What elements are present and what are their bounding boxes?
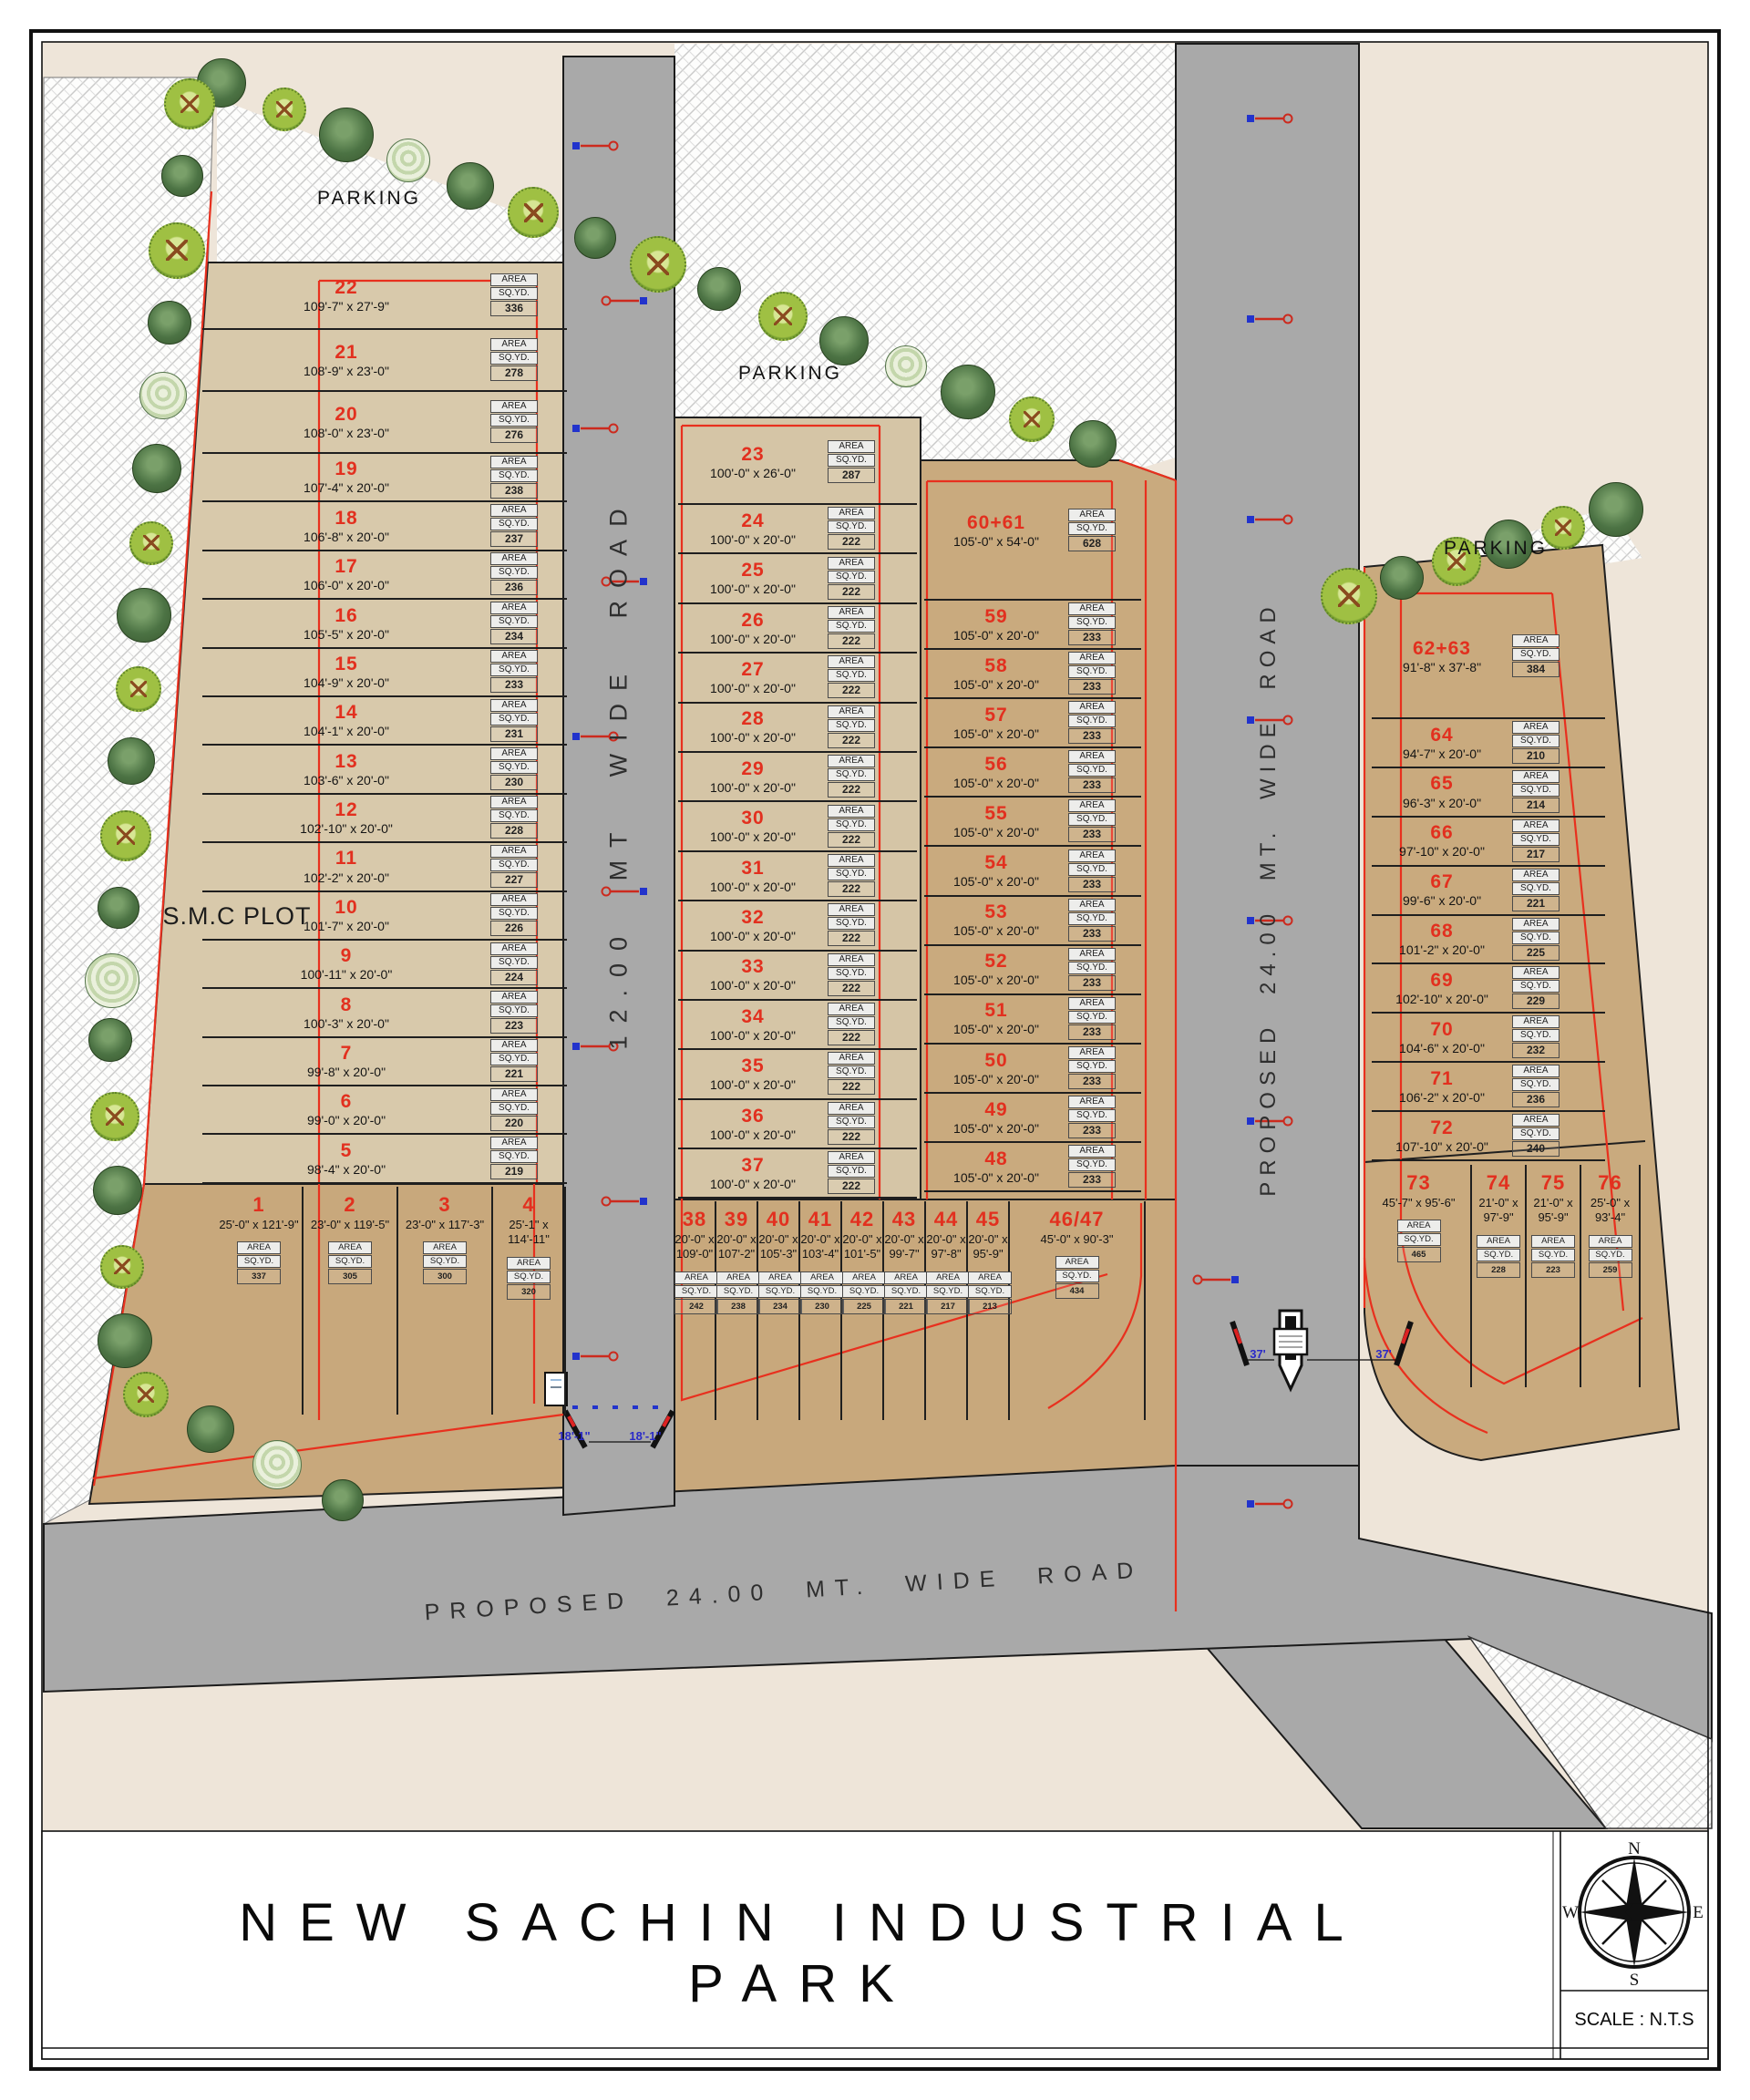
plot-number: 8: [202, 995, 490, 1015]
area-box: AREASQ.YD.278: [490, 338, 538, 382]
plot-dimension: 100'-0" x 20'-0": [678, 1078, 828, 1092]
plot-dimension: 99'-8" x 20'-0": [202, 1065, 490, 1079]
area-box: AREASQ.YD.233: [1068, 849, 1116, 893]
area-box: AREASQ.YD.222: [828, 1102, 875, 1146]
plot-dimension: 98'-4" x 20'-0": [202, 1163, 490, 1177]
area-box: AREASQ.YD.233: [490, 650, 538, 694]
plot-dimension: 94'-7" x 20'-0": [1372, 747, 1512, 761]
plot-column-far-right: 62+6391'-8" x 37'-8"AREASQ.YD.3846494'-7…: [1372, 595, 1605, 1161]
plot-dimension: 100'-0" x 20'-0": [678, 930, 828, 943]
area-box: AREASQ.YD.229: [1512, 966, 1560, 1010]
plot-23: 23100'-0" x 26'-0"AREASQ.YD.287: [678, 421, 917, 505]
area-box: AREASQ.YD.213: [968, 1271, 1012, 1314]
area-box: AREASQ.YD.240: [1512, 1114, 1560, 1158]
plot-number: 37: [678, 1156, 828, 1176]
plot-number: 31: [678, 859, 828, 879]
plot-dimension: 45'-0" x 90'-3": [1010, 1232, 1144, 1247]
area-box: AREASQ.YD.228: [490, 796, 538, 839]
area-box: AREASQ.YD.222: [828, 705, 875, 749]
plot-dimension: 105'-0" x 20'-0": [924, 875, 1068, 889]
plot-dimension: 20'-0" x 107'-2": [716, 1232, 757, 1262]
area-box: AREASQ.YD.236: [1512, 1065, 1560, 1108]
area-box: AREASQ.YD.220: [490, 1088, 538, 1132]
area-box: AREASQ.YD.384: [1512, 634, 1560, 678]
area-box: AREASQ.YD.217: [926, 1271, 970, 1314]
plot-14: 14104'-1" x 20'-0"AREASQ.YD.231: [202, 697, 567, 746]
area-box: AREASQ.YD.230: [800, 1271, 844, 1314]
plot-dimension: 100'-0" x 20'-0": [678, 533, 828, 547]
plot-dimension: 25'-0" x 121'-9": [216, 1218, 302, 1232]
plot-number: 44: [926, 1209, 966, 1230]
plot-60+61: 60+61105'-0" x 54'-0"AREASQ.YD.628: [924, 462, 1141, 601]
plot-49: 49105'-0" x 20'-0"AREASQ.YD.233: [924, 1094, 1141, 1143]
plot-number: 7: [202, 1044, 490, 1064]
plot-number: 42: [842, 1209, 882, 1230]
plot-dimension: 96'-3" x 20'-0": [1372, 797, 1512, 810]
area-box: AREASQ.YD.223: [1531, 1235, 1575, 1278]
plot-50: 50105'-0" x 20'-0"AREASQ.YD.233: [924, 1045, 1141, 1094]
plot-number: 68: [1372, 921, 1512, 942]
tree-icon: [1009, 396, 1055, 442]
road-label-right: PROPOSED 24.00 MT. WIDE ROAD: [1256, 593, 1282, 1204]
area-box: AREASQ.YD.221: [884, 1271, 928, 1314]
plot-68: 68101'-2" x 20'-0"AREASQ.YD.225: [1372, 916, 1605, 965]
tree-icon: [98, 1313, 152, 1368]
area-box: AREASQ.YD.221: [490, 1039, 538, 1083]
plot-dimension: 106'-8" x 20'-0": [202, 530, 490, 544]
plot-number: 50: [924, 1051, 1068, 1071]
plot-number: 33: [678, 957, 828, 977]
plot-number: 2: [304, 1194, 396, 1215]
plot-column-right-middle: 60+61105'-0" x 54'-0"AREASQ.YD.62859105'…: [924, 462, 1141, 1192]
plot-71: 71106'-2" x 20'-0"AREASQ.YD.236: [1372, 1063, 1605, 1112]
plot-31: 31100'-0" x 20'-0"AREASQ.YD.222: [678, 852, 917, 901]
plot-dimension: 106'-0" x 20'-0": [202, 579, 490, 592]
plot-number: 53: [924, 902, 1068, 922]
tree-icon: [447, 162, 494, 210]
tree-icon: [322, 1479, 364, 1521]
plot-dimension: 20'-0" x 105'-3": [758, 1232, 798, 1262]
plot-72: 72107'-10" x 20'-0"AREASQ.YD.240: [1372, 1112, 1605, 1161]
plot-dimension: 100'-0" x 20'-0": [678, 979, 828, 993]
plot-dimension: 106'-2" x 20'-0": [1372, 1091, 1512, 1105]
plot-number: 35: [678, 1056, 828, 1076]
plot-number: 14: [202, 703, 490, 723]
plot-dimension: 104'-9" x 20'-0": [202, 676, 490, 690]
plot-number: 13: [202, 752, 490, 772]
plot-dimension: 107'-4" x 20'-0": [202, 481, 490, 495]
tree-icon: [85, 953, 139, 1008]
area-box: AREASQ.YD.222: [828, 557, 875, 601]
area-box: AREASQ.YD.230: [490, 747, 538, 791]
plot-dimension: 20'-0" x 99'-7": [884, 1232, 924, 1262]
area-box: AREASQ.YD.233: [1068, 1046, 1116, 1090]
plot-number: 70: [1372, 1020, 1512, 1040]
plot-number: 40: [758, 1209, 798, 1230]
plot-number: 9: [202, 946, 490, 966]
tree-icon: [819, 316, 869, 365]
plot-17: 17106'-0" x 20'-0"AREASQ.YD.236: [202, 551, 567, 600]
area-box: AREASQ.YD.434: [1055, 1256, 1099, 1299]
plot-dimension: 100'-0" x 20'-0": [678, 830, 828, 844]
plot-40: 4020'-0" x 105'-3"AREASQ.YD.234: [758, 1201, 800, 1420]
area-box: AREASQ.YD.300: [423, 1241, 467, 1284]
plot-number: 51: [924, 1001, 1068, 1021]
plot-dimension: 101'-2" x 20'-0": [1372, 943, 1512, 957]
tree-icon: [252, 1440, 302, 1489]
plot-42: 4220'-0" x 101'-5"AREASQ.YD.225: [842, 1201, 884, 1420]
plot-dimension: 100'-11" x 20'-0": [202, 968, 490, 982]
plot-59: 59105'-0" x 20'-0"AREASQ.YD.233: [924, 601, 1141, 650]
area-box: AREASQ.YD.225: [1512, 918, 1560, 962]
area-box: AREASQ.YD.221: [1512, 869, 1560, 912]
plot-28: 28100'-0" x 20'-0"AREASQ.YD.222: [678, 704, 917, 753]
plot-number: 4: [493, 1194, 564, 1215]
plot-dimension: 97'-10" x 20'-0": [1372, 845, 1512, 859]
tree-icon: [100, 1245, 144, 1289]
plot-24: 24100'-0" x 20'-0"AREASQ.YD.222: [678, 505, 917, 554]
plot-number: 36: [678, 1107, 828, 1127]
plot-9: 9100'-11" x 20'-0"AREASQ.YD.224: [202, 941, 567, 989]
plot-38: 3820'-0" x 109'-0"AREASQ.YD.242: [674, 1201, 716, 1420]
plot-dimension: 20'-0" x 109'-0": [674, 1232, 715, 1262]
plot-dimension: 100'-0" x 20'-0": [678, 582, 828, 596]
plot-dimension: 100'-0" x 20'-0": [678, 633, 828, 646]
plot-8: 8100'-3" x 20'-0"AREASQ.YD.223: [202, 989, 567, 1037]
plot-number: 28: [678, 709, 828, 729]
plot-number: 38: [674, 1209, 715, 1230]
plot-number: 18: [202, 509, 490, 529]
plot-number: 21: [202, 343, 490, 363]
tree-icon: [117, 588, 171, 643]
area-box: AREASQ.YD.222: [828, 606, 875, 650]
plot-dimension: 104'-6" x 20'-0": [1372, 1042, 1512, 1055]
area-box: AREASQ.YD.231: [490, 699, 538, 743]
parking-label-top-left: PARKING: [292, 188, 447, 210]
plot-number: 45: [968, 1209, 1008, 1230]
plot-13: 13103'-6" x 20'-0"AREASQ.YD.230: [202, 746, 567, 794]
plot-dimension: 45'-7" x 95'-6": [1367, 1196, 1470, 1210]
plot-dimension: 105'-0" x 20'-0": [924, 1023, 1068, 1036]
area-box: AREASQ.YD.305: [328, 1241, 372, 1284]
plot-3: 323'-0" x 117'-3"AREASQ.YD.300: [398, 1187, 493, 1415]
plot-dimension: 105'-0" x 20'-0": [924, 826, 1068, 839]
plot-number: 11: [202, 849, 490, 869]
plot-number: 3: [398, 1194, 491, 1215]
plot-15: 15104'-9" x 20'-0"AREASQ.YD.233: [202, 649, 567, 697]
area-box: AREASQ.YD.233: [1068, 750, 1116, 794]
plot-dimension: 100'-0" x 20'-0": [678, 1029, 828, 1043]
plot-70: 70104'-6" x 20'-0"AREASQ.YD.232: [1372, 1014, 1605, 1063]
plot-number: 55: [924, 804, 1068, 824]
plot-dimension: 99'-6" x 20'-0": [1372, 894, 1512, 908]
plot-dimension: 105'-0" x 20'-0": [924, 1073, 1068, 1086]
gate-dimension: 37': [1364, 1347, 1404, 1361]
plot-44: 4420'-0" x 97'-8"AREASQ.YD.217: [926, 1201, 968, 1420]
area-box: AREASQ.YD.233: [1068, 899, 1116, 942]
area-box: AREASQ.YD.233: [1068, 948, 1116, 992]
plot-64: 6494'-7" x 20'-0"AREASQ.YD.210: [1372, 719, 1605, 768]
tree-icon: [758, 292, 808, 341]
plot-number: 5: [202, 1141, 490, 1161]
parking-label-middle: PARKING: [713, 363, 868, 385]
plot-dimension: 100'-0" x 20'-0": [678, 1128, 828, 1142]
plot-54: 54105'-0" x 20'-0"AREASQ.YD.233: [924, 847, 1141, 896]
tree-icon: [93, 1166, 142, 1215]
tree-icon: [149, 222, 205, 279]
plot-dimension: 100'-0" x 26'-0": [678, 467, 828, 480]
tree-icon: [88, 1018, 132, 1062]
plot-dimension: 105'-0" x 20'-0": [924, 629, 1068, 643]
plot-number: 34: [678, 1007, 828, 1027]
site-plan: N S E W PARKING PARKING PARKING S.M.C PL…: [0, 0, 1750, 2100]
compass-west: W: [1562, 1903, 1579, 1922]
plot-75: 7521'-0" x 95'-9"AREASQ.YD.223: [1527, 1165, 1581, 1387]
area-box: AREASQ.YD.465: [1397, 1220, 1441, 1262]
plot-25: 25100'-0" x 20'-0"AREASQ.YD.222: [678, 554, 917, 603]
plot-27: 27100'-0" x 20'-0"AREASQ.YD.222: [678, 654, 917, 703]
plot-number: 62+63: [1372, 639, 1512, 659]
road-label-middle: 12.00 MT WIDE ROAD: [605, 540, 633, 1050]
plot-11: 11102'-2" x 20'-0"AREASQ.YD.227: [202, 843, 567, 891]
plot-53: 53105'-0" x 20'-0"AREASQ.YD.233: [924, 897, 1141, 946]
plot-57: 57105'-0" x 20'-0"AREASQ.YD.233: [924, 699, 1141, 748]
plot-dimension: 99'-0" x 20'-0": [202, 1114, 490, 1127]
area-box: AREASQ.YD.228: [1477, 1235, 1520, 1278]
area-box: AREASQ.YD.222: [828, 1151, 875, 1195]
area-box: AREASQ.YD.224: [490, 942, 538, 986]
plot-number: 48: [924, 1149, 1068, 1169]
area-box: AREASQ.YD.234: [758, 1271, 802, 1314]
plot-69: 69102'-10" x 20'-0"AREASQ.YD.229: [1372, 964, 1605, 1014]
tree-icon: [1380, 556, 1424, 600]
area-box: AREASQ.YD.336: [490, 273, 538, 317]
tree-icon: [164, 78, 215, 129]
plot-dimension: 100'-3" x 20'-0": [202, 1017, 490, 1031]
plot-number: 46/47: [1010, 1209, 1144, 1230]
plot-dimension: 25'-0" x 93'-4": [1581, 1196, 1639, 1226]
tree-icon: [90, 1092, 139, 1141]
plot-number: 22: [202, 278, 490, 298]
plot-dimension: 105'-0" x 20'-0": [924, 1122, 1068, 1136]
plot-6: 699'-0" x 20'-0"AREASQ.YD.220: [202, 1086, 567, 1135]
plot-number: 12: [202, 800, 490, 820]
plot-number: 30: [678, 808, 828, 829]
tree-icon: [148, 301, 191, 345]
plot-33: 33100'-0" x 20'-0"AREASQ.YD.222: [678, 952, 917, 1001]
plot-number: 41: [800, 1209, 840, 1230]
plot-34: 34100'-0" x 20'-0"AREASQ.YD.222: [678, 1001, 917, 1050]
area-box: AREASQ.YD.234: [490, 602, 538, 645]
plot-58: 58105'-0" x 20'-0"AREASQ.YD.233: [924, 650, 1141, 699]
plot-37: 37100'-0" x 20'-0"AREASQ.YD.222: [678, 1149, 917, 1199]
plot-number: 43: [884, 1209, 924, 1230]
area-box: AREASQ.YD.219: [490, 1137, 538, 1180]
area-box: AREASQ.YD.214: [1512, 770, 1560, 814]
tree-icon: [319, 108, 374, 162]
plot-2: 223'-0" x 119'-5"AREASQ.YD.305: [304, 1187, 398, 1415]
area-box: AREASQ.YD.226: [490, 893, 538, 937]
plot-number: 32: [678, 908, 828, 928]
area-box: AREASQ.YD.276: [490, 400, 538, 444]
plot-dimension: 91'-8" x 37'-8": [1372, 661, 1512, 674]
area-box: AREASQ.YD.287: [828, 440, 875, 484]
area-box: AREASQ.YD.222: [828, 1052, 875, 1096]
plot-5: 598'-4" x 20'-0"AREASQ.YD.219: [202, 1135, 567, 1183]
plot-dimension: 104'-1" x 20'-0": [202, 725, 490, 738]
area-box: AREASQ.YD.222: [828, 903, 875, 947]
plot-number: 54: [924, 853, 1068, 873]
tree-icon: [1321, 568, 1377, 624]
plot-strip-far-right-bottom: 7345'-7" x 95'-6"AREASQ.YD.4657421'-0" x…: [1367, 1165, 1641, 1387]
plot-dimension: 105'-0" x 20'-0": [924, 727, 1068, 741]
tree-icon: [386, 139, 430, 182]
area-box: AREASQ.YD.225: [842, 1271, 886, 1314]
plot-12: 12102'-10" x 20'-0"AREASQ.YD.228: [202, 795, 567, 843]
plot-dimension: 100'-0" x 20'-0": [678, 731, 828, 745]
plot-dimension: 109'-7" x 27'-9": [202, 300, 490, 314]
plot-number: 58: [924, 656, 1068, 676]
plot-46/47: 46/4745'-0" x 90'-3"AREASQ.YD.434: [1010, 1201, 1146, 1420]
plot-dimension: 105'-0" x 20'-0": [924, 973, 1068, 987]
plot-16: 16105'-5" x 20'-0"AREASQ.YD.234: [202, 600, 567, 648]
plot-dimension: 21'-0" x 95'-9": [1527, 1196, 1580, 1226]
plot-dimension: 100'-0" x 20'-0": [678, 880, 828, 894]
area-box: AREASQ.YD.227: [490, 845, 538, 889]
plot-column-left: 22109'-7" x 27'-9"AREASQ.YD.33621108'-9"…: [202, 262, 567, 1184]
plot-41: 4120'-0" x 103'-4"AREASQ.YD.230: [800, 1201, 842, 1420]
plot-29: 29100'-0" x 20'-0"AREASQ.YD.222: [678, 753, 917, 802]
plot-number: 52: [924, 952, 1068, 972]
plot-30: 30100'-0" x 20'-0"AREASQ.YD.222: [678, 802, 917, 851]
plot-dimension: 23'-0" x 119'-5": [304, 1218, 396, 1232]
tree-icon: [1069, 420, 1117, 468]
plot-number: 23: [678, 445, 828, 465]
plot-number: 39: [716, 1209, 757, 1230]
plot-dimension: 21'-0" x 97'-9": [1472, 1196, 1525, 1226]
area-box: AREASQ.YD.222: [828, 1003, 875, 1046]
plot-1: 125'-0" x 121'-9"AREASQ.YD.337: [216, 1187, 304, 1415]
plot-number: 64: [1372, 726, 1512, 746]
plot-number: 26: [678, 611, 828, 631]
plot-22: 22109'-7" x 27'-9"AREASQ.YD.336: [202, 262, 567, 330]
gate-dimension: 37': [1238, 1347, 1278, 1361]
plot-number: 24: [678, 511, 828, 531]
area-box: AREASQ.YD.233: [1068, 1145, 1116, 1189]
plot-43: 4320'-0" x 99'-7"AREASQ.YD.221: [884, 1201, 926, 1420]
plot-number: 65: [1372, 774, 1512, 794]
area-box: AREASQ.YD.242: [674, 1271, 718, 1314]
plot-dimension: 100'-0" x 20'-0": [678, 781, 828, 795]
plot-number: 74: [1472, 1172, 1525, 1193]
tree-icon: [1589, 482, 1643, 537]
plot-45: 4520'-0" x 95'-9"AREASQ.YD.213: [968, 1201, 1010, 1420]
area-box: AREASQ.YD.238: [716, 1271, 760, 1314]
plot-number: 72: [1372, 1118, 1512, 1138]
plot-dimension: 105'-5" x 20'-0": [202, 628, 490, 642]
plot-dimension: 108'-0" x 23'-0": [202, 427, 490, 440]
tree-icon: [139, 372, 187, 419]
plot-dimension: 20'-0" x 103'-4": [800, 1232, 840, 1262]
area-box: AREASQ.YD.223: [490, 991, 538, 1035]
plot-number: 73: [1367, 1172, 1470, 1193]
plot-20: 20108'-0" x 23'-0"AREASQ.YD.276: [202, 392, 567, 454]
plot-number: 16: [202, 606, 490, 626]
plot-number: 76: [1581, 1172, 1639, 1193]
plot-56: 56105'-0" x 20'-0"AREASQ.YD.233: [924, 748, 1141, 798]
area-box: AREASQ.YD.259: [1589, 1235, 1632, 1278]
plot-number: 75: [1527, 1172, 1580, 1193]
area-box: AREASQ.YD.232: [1512, 1015, 1560, 1059]
area-box: AREASQ.YD.237: [490, 504, 538, 548]
parking-label-right: PARKING: [1418, 538, 1573, 560]
plot-number: 69: [1372, 971, 1512, 991]
plot-column-middle: 23100'-0" x 26'-0"AREASQ.YD.28724100'-0"…: [678, 421, 917, 1199]
area-box: AREASQ.YD.233: [1068, 652, 1116, 695]
plot-dimension: 105'-0" x 54'-0": [924, 535, 1068, 549]
compass-east: E: [1693, 1903, 1704, 1922]
plot-number: 60+61: [924, 513, 1068, 533]
plot-dimension: 100'-0" x 20'-0": [678, 682, 828, 695]
plot-36: 36100'-0" x 20'-0"AREASQ.YD.222: [678, 1100, 917, 1149]
gate-dimension: 18'-1": [547, 1429, 602, 1443]
plot-35: 35100'-0" x 20'-0"AREASQ.YD.222: [678, 1050, 917, 1099]
tree-icon: [132, 444, 181, 493]
plot-dimension: 25'-1" x 114'-11": [493, 1218, 564, 1248]
tree-icon: [116, 666, 161, 712]
area-box: AREASQ.YD.222: [828, 655, 875, 699]
plot-number: 66: [1372, 823, 1512, 843]
plot-number: 71: [1372, 1069, 1512, 1089]
plot-dimension: 102'-10" x 20'-0": [202, 822, 490, 836]
plot-number: 19: [202, 459, 490, 479]
area-box: AREASQ.YD.238: [490, 456, 538, 499]
plot-number: 49: [924, 1100, 1068, 1120]
plot-number: 56: [924, 755, 1068, 775]
area-box: AREASQ.YD.222: [828, 953, 875, 997]
plot-dimension: 20'-0" x 101'-5": [842, 1232, 882, 1262]
plot-19: 19107'-4" x 20'-0"AREASQ.YD.238: [202, 454, 567, 502]
compass-north: N: [1628, 1839, 1641, 1858]
area-box: AREASQ.YD.233: [1068, 602, 1116, 646]
area-box: AREASQ.YD.222: [828, 854, 875, 898]
area-box: AREASQ.YD.222: [828, 805, 875, 849]
plot-number: 15: [202, 654, 490, 674]
plot-number: 27: [678, 660, 828, 680]
area-box: AREASQ.YD.233: [1068, 997, 1116, 1041]
area-box: AREASQ.YD.236: [490, 552, 538, 596]
plot-66: 6697'-10" x 20'-0"AREASQ.YD.217: [1372, 818, 1605, 867]
plot-52: 52105'-0" x 20'-0"AREASQ.YD.233: [924, 946, 1141, 995]
plot-dimension: 102'-2" x 20'-0": [202, 871, 490, 885]
area-box: AREASQ.YD.337: [237, 1241, 281, 1284]
gate-dimension: 18'-1": [618, 1429, 673, 1443]
smc-plot-label: S.M.C PLOT: [137, 902, 337, 931]
plot-26: 26100'-0" x 20'-0"AREASQ.YD.222: [678, 604, 917, 654]
plot-number: 6: [202, 1092, 490, 1112]
plot-32: 32100'-0" x 20'-0"AREASQ.YD.222: [678, 901, 917, 951]
plot-number: 57: [924, 705, 1068, 726]
scale-label: SCALE : N.T.S: [1560, 2010, 1708, 2031]
plot-number: 20: [202, 405, 490, 425]
plot-dimension: 100'-0" x 20'-0": [678, 1178, 828, 1191]
area-box: AREASQ.YD.222: [828, 755, 875, 798]
plot-number: 25: [678, 561, 828, 581]
plot-dimension: 20'-0" x 95'-9": [968, 1232, 1008, 1262]
plot-dimension: 105'-0" x 20'-0": [924, 924, 1068, 938]
plot-76: 7625'-0" x 93'-4"AREASQ.YD.259: [1581, 1165, 1641, 1387]
plot-number: 1: [216, 1194, 302, 1215]
